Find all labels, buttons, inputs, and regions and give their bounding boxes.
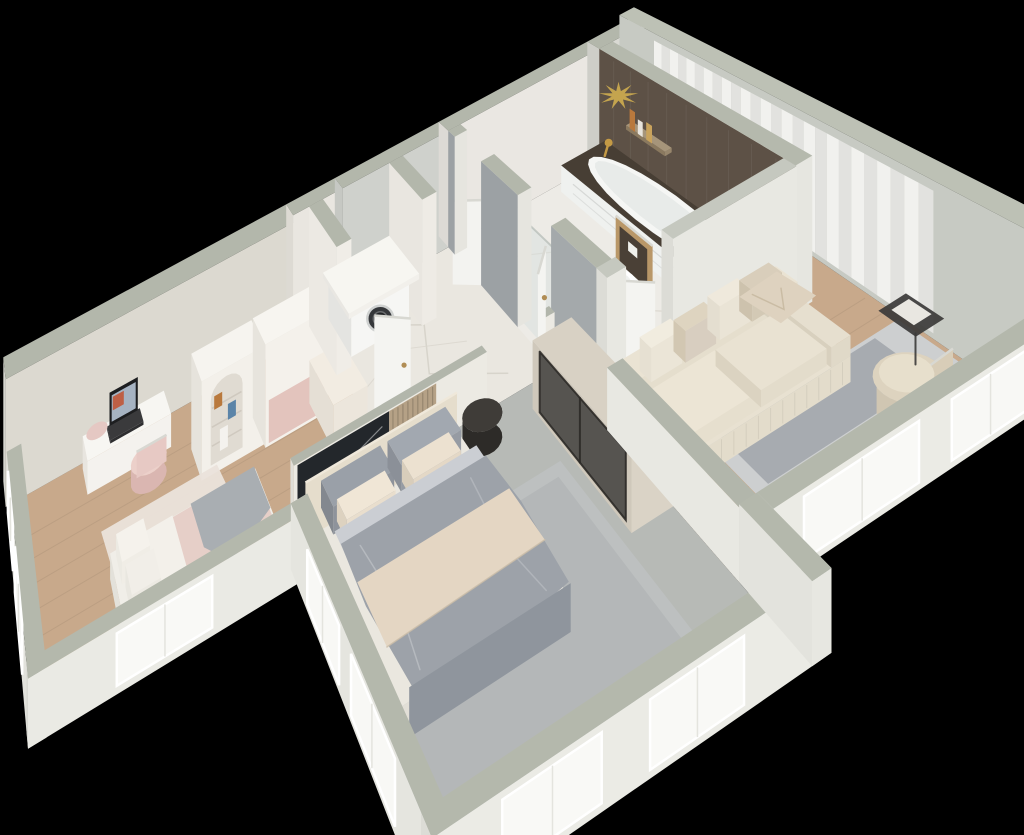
bath-left-wall-seg1 <box>448 124 467 255</box>
apartment-floorplan-viewport <box>0 0 1024 835</box>
bath-bottle-amber <box>630 109 635 132</box>
floorplan-3d-render <box>0 0 1024 835</box>
bookshelf-vase <box>220 425 228 451</box>
